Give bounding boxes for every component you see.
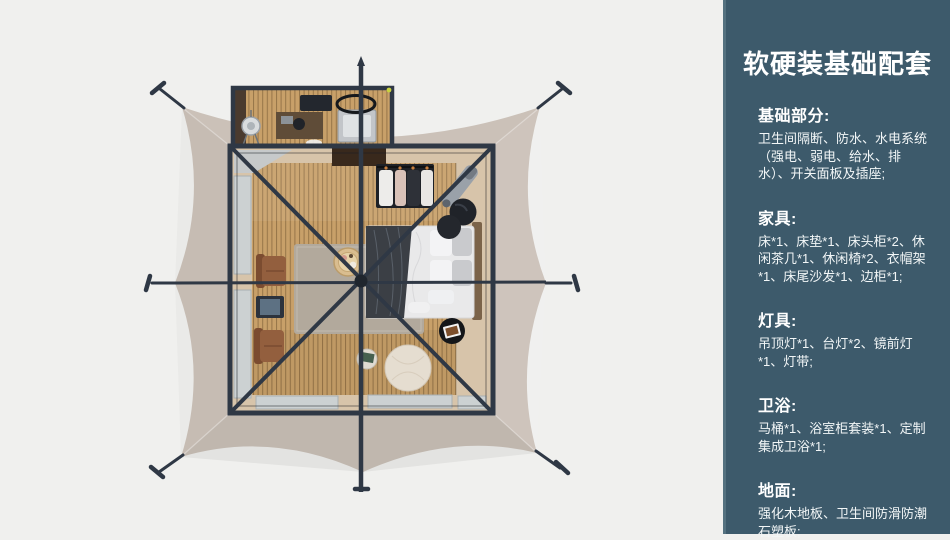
- garment-white: [379, 170, 393, 206]
- spec-section-furniture: 家具: 床*1、床垫*1、床头柜*2、休闲茶几*1、休闲椅*2、衣帽架*1、床尾…: [741, 205, 934, 286]
- spec-panel: 软硬装基础配套 基础部分: 卫生间隔断、防水、水电系统（强电、弱电、给水、排水）…: [723, 0, 950, 534]
- section-body: 卫生间隔断、防水、水电系统（强电、弱电、给水、排水）、开关面板及插座;: [758, 130, 932, 183]
- pillow: [430, 260, 452, 284]
- foot-cushion: [408, 302, 430, 313]
- spec-section-lighting: 灯具: 吊顶灯*1、台灯*2、镜前灯*1、灯带;: [741, 307, 934, 370]
- garment-dark: [407, 170, 420, 206]
- rattan-tray: [334, 248, 362, 276]
- garment-white: [421, 170, 433, 206]
- section-body: 吊顶灯*1、台灯*2、镜前灯*1、灯带;: [758, 335, 932, 370]
- clothes-rack: [376, 164, 434, 208]
- section-body: 马桶*1、浴室柜套装*1、定制集成卫浴*1;: [758, 420, 932, 455]
- section-body: 床*1、床垫*1、床头柜*2、休闲茶几*1、休闲椅*2、衣帽架*1、床尾沙发*1…: [758, 233, 932, 286]
- section-heading: 家具:: [758, 205, 932, 229]
- pouf-ottoman: [385, 345, 431, 391]
- section-heading: 基础部分:: [758, 102, 932, 126]
- window-bottom-1: [256, 396, 338, 409]
- spec-section-basics: 基础部分: 卫生间隔断、防水、水电系统（强电、弱电、给水、排水）、开关面板及插座…: [741, 102, 934, 183]
- bathroom-unit: [233, 88, 392, 148]
- garment-pink: [395, 170, 406, 206]
- bathroom-mirror: [300, 95, 332, 111]
- vanity-accessory: [281, 116, 293, 124]
- side-cabinet: [256, 296, 284, 318]
- spec-section-bathroom: 卫浴: 马桶*1、浴室柜套装*1、定制集成卫浴*1;: [741, 392, 934, 455]
- round-side-table: [439, 318, 465, 344]
- floorplan-render: [0, 0, 723, 534]
- lounge-chair-lower: [254, 328, 284, 364]
- frame-hub: [355, 275, 368, 288]
- canvas-shade-right: [493, 107, 546, 453]
- slide: 软硬装基础配套 基础部分: 卫生间隔断、防水、水电系统（强电、弱电、给水、排水）…: [0, 0, 950, 534]
- bathroom-wall-strip: [235, 90, 246, 146]
- bed: [366, 222, 482, 320]
- section-heading: 灯具:: [758, 307, 932, 331]
- section-heading: 地面:: [758, 477, 932, 501]
- section-body: 强化木地板、卫生间防滑防潮石塑板;: [758, 505, 932, 540]
- vanity-basin: [293, 118, 305, 130]
- pole-finial: [357, 56, 365, 66]
- lumbar-pillow: [428, 290, 454, 304]
- section-heading: 卫浴:: [758, 392, 932, 416]
- panel-title: 软硬装基础配套: [743, 44, 934, 81]
- spec-section-flooring: 地面: 强化木地板、卫生间防滑防潮石塑板;: [741, 477, 934, 540]
- frame-marker-dot: [387, 88, 392, 93]
